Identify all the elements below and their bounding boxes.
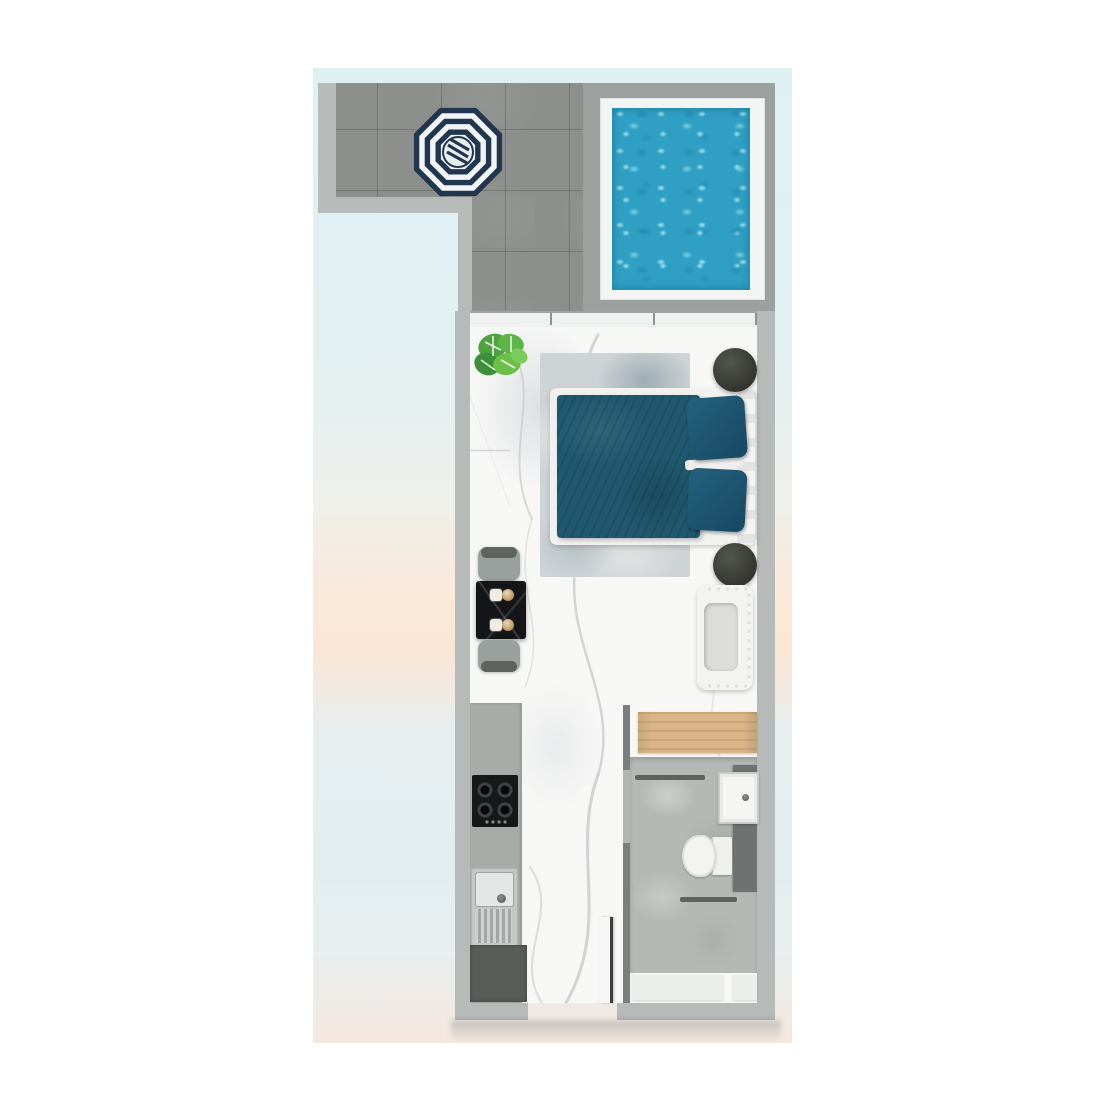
pool-water xyxy=(612,108,750,290)
window-divider xyxy=(653,313,655,325)
chair-backrest xyxy=(481,661,517,672)
lounge-fringe-right xyxy=(745,591,753,684)
dining-chair-bottom xyxy=(478,640,520,672)
dining-chair-top xyxy=(478,547,520,581)
bed-pillow-bottom xyxy=(686,468,747,533)
sink-drainer xyxy=(475,909,512,943)
bottom-wall-right xyxy=(617,1003,775,1020)
kitchen-sink-unit xyxy=(471,868,518,947)
kitchen-base-cabinet xyxy=(470,945,527,1002)
dining-table xyxy=(476,581,526,639)
lounge-fringe-top xyxy=(705,585,747,593)
bathroom-basin xyxy=(718,772,759,824)
lounge-seat xyxy=(704,603,738,671)
plate xyxy=(490,589,502,601)
terrace-wall-bottom xyxy=(318,197,458,213)
plan-drop-shadow xyxy=(451,1020,781,1042)
umbrella-icon xyxy=(413,107,503,197)
terrace-wall-left xyxy=(318,83,336,213)
plate xyxy=(490,619,502,631)
bathroom-wall xyxy=(623,705,630,1003)
terrace-floor-side xyxy=(472,197,583,311)
bathroom-door-opening xyxy=(623,770,630,843)
bath-mat-large xyxy=(632,975,723,1000)
chair-backrest xyxy=(481,547,517,558)
bed-duvet xyxy=(557,395,700,538)
potted-plant xyxy=(471,330,535,386)
sink-bowl xyxy=(475,872,514,907)
tv-console xyxy=(470,388,510,513)
left-wall xyxy=(455,311,470,1020)
towel-bar-top xyxy=(635,775,705,780)
side-stool-top xyxy=(713,348,757,392)
entry-door-leaf xyxy=(600,917,613,1003)
bottom-wall-left xyxy=(455,1003,528,1020)
bath-mat-small xyxy=(733,975,757,1000)
towel-bar-bottom xyxy=(680,897,737,902)
wood-wardrobe xyxy=(638,712,757,753)
dish xyxy=(502,619,514,631)
dish xyxy=(502,589,514,601)
right-wall xyxy=(757,311,775,1020)
sink-faucet xyxy=(497,894,506,903)
terrace-wall-notch xyxy=(458,197,472,311)
basin-faucet xyxy=(742,794,749,801)
floor-plan-image xyxy=(313,68,792,1043)
toilet-bowl xyxy=(682,835,716,877)
lounge-fringe-bottom xyxy=(705,682,747,690)
plant-icon xyxy=(471,330,535,386)
patio-umbrella xyxy=(413,107,503,197)
window-divider xyxy=(550,313,552,325)
cooktop-hob xyxy=(472,775,518,827)
bed-pillow-top xyxy=(686,395,748,461)
lounge-chair xyxy=(697,585,753,690)
side-stool-bottom xyxy=(713,543,757,587)
